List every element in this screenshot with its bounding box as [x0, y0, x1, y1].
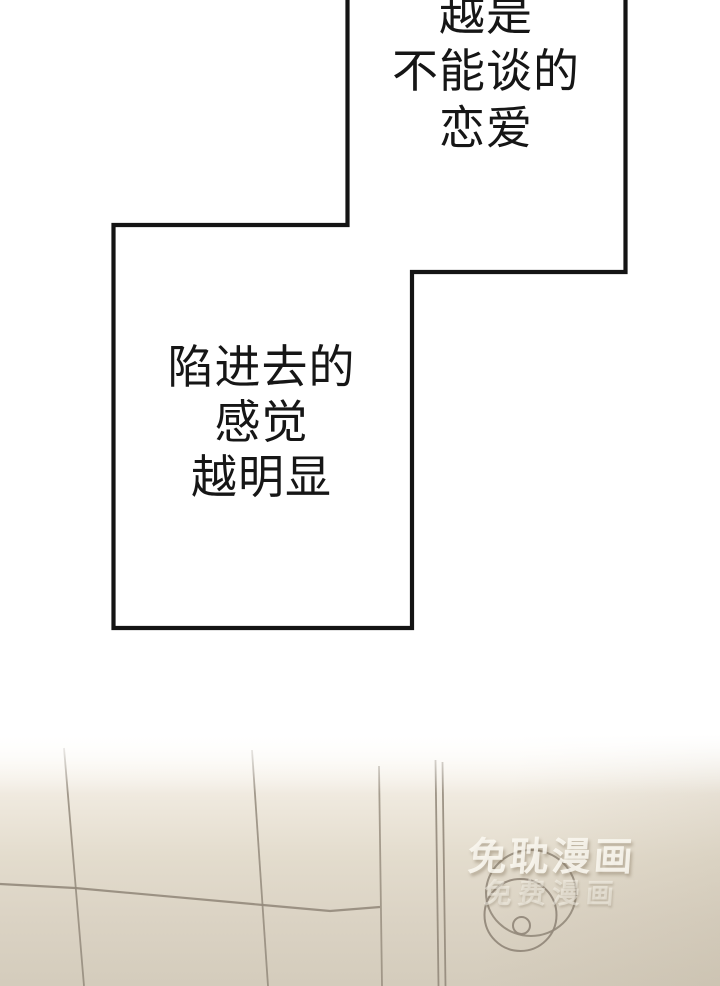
speech-line: 恋爱: [346, 100, 626, 157]
speech-line: 越明显: [120, 450, 403, 505]
speech-line: 陷进去的: [120, 340, 403, 395]
speech-line: 感觉: [120, 395, 403, 450]
paper-roll-core-circle: [513, 917, 530, 934]
door-edge-line: [379, 766, 382, 986]
scene-top-fade: [0, 718, 720, 794]
bathroom-scene: 免耽漫画 免费漫画: [0, 718, 720, 986]
door-frame-line-right: [443, 762, 446, 986]
watermark-secondary: 免费漫画: [483, 872, 622, 912]
tile-line-horizontal: [0, 884, 380, 911]
speech-text-top: 越是 不能谈的 恋爱: [346, 0, 626, 157]
speech-line: 越是: [346, 0, 626, 43]
speech-text-middle: 陷进去的 感觉 越明显: [120, 340, 403, 505]
comic-page: 越是 不能谈的 恋爱 陷进去的 感觉 越明显 免耽漫画 免费漫画: [0, 0, 720, 986]
speech-line: 不能谈的: [346, 43, 626, 100]
